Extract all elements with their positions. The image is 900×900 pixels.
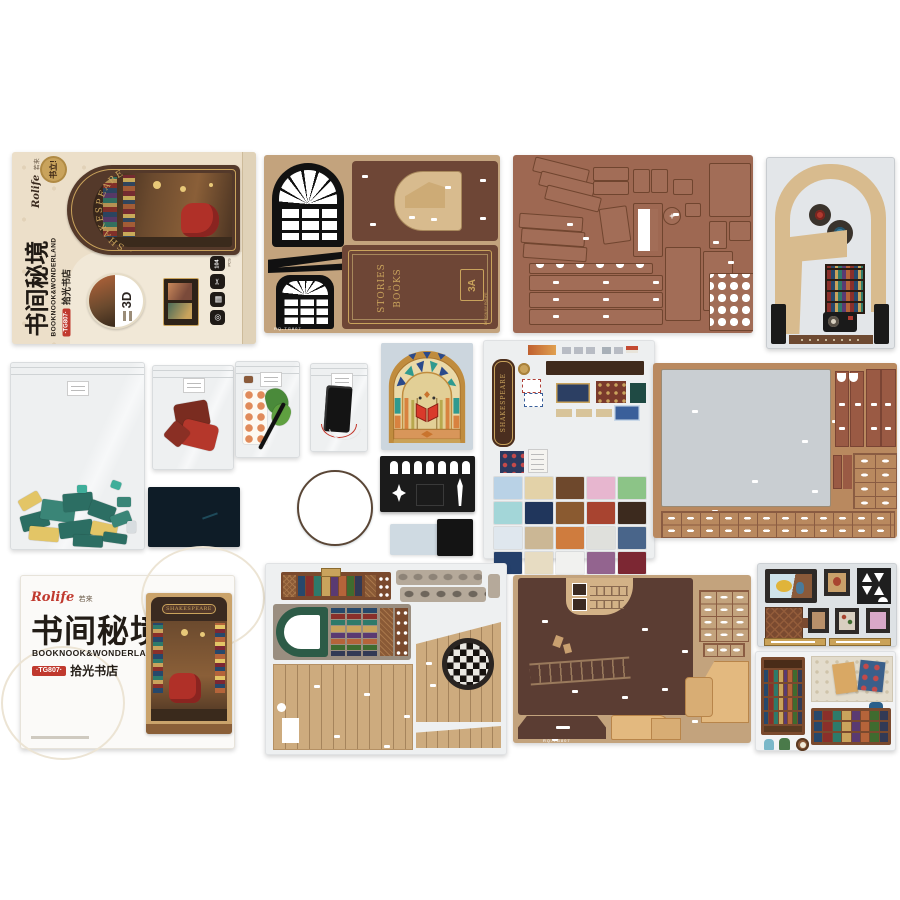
wallpaper-panel-part: [811, 656, 893, 702]
ladder-etch-large: [529, 657, 630, 686]
swatch: [769, 698, 773, 710]
swatch: [347, 645, 361, 650]
assembly-glyph: ▦: [213, 296, 222, 304]
swatch: [363, 626, 377, 631]
envelope-sticker: [522, 379, 541, 393]
lightblue-panel: [390, 524, 438, 555]
box-brand: Rolife 若来: [26, 166, 38, 208]
book-cover-panel: STORIES in BOOKS 3A DESIGN BY ROLIFE: [342, 245, 498, 329]
swatch: [322, 576, 329, 596]
swatch: [339, 576, 346, 596]
arch-cutout-tan: [566, 578, 633, 615]
swatch: [833, 722, 841, 731]
dotted-tile: [395, 608, 408, 656]
assembly-icon: ▦: [210, 292, 225, 307]
gray-wall-part: [661, 369, 831, 507]
sheet-arch-gray: [766, 157, 895, 349]
envelope-sticker: [524, 393, 543, 407]
swatch: [798, 670, 802, 682]
bag-label: [260, 372, 282, 387]
black-cut-sheet: [380, 456, 475, 512]
floor-strip-part: [416, 726, 501, 748]
swatch: [774, 684, 778, 696]
swatch: [556, 477, 584, 499]
swatch: [769, 684, 773, 696]
swatch: [784, 684, 788, 696]
cover-logo-box: 3A: [460, 269, 484, 301]
sheet-gray-panel: [653, 363, 897, 538]
swatch: [347, 608, 361, 613]
black-corner-part: [771, 304, 786, 344]
swatch: [618, 477, 646, 499]
swatch: [331, 576, 338, 596]
bag-accessories: [235, 361, 300, 458]
dark-base-part: [518, 716, 606, 739]
rect-window-frame: [276, 275, 334, 329]
swatch: [331, 614, 345, 619]
swatch: [779, 712, 783, 724]
stone-path-part: [396, 570, 482, 585]
swatch: [525, 552, 553, 574]
cut-part: [599, 205, 632, 245]
small-gray-stickers: [562, 347, 571, 354]
swatch: [779, 684, 783, 696]
vase-blob: [796, 582, 804, 594]
slot-marks: [542, 620, 548, 623]
bag-red-parts: [152, 365, 234, 470]
swatch: [870, 733, 878, 742]
swatch: [861, 711, 869, 720]
sheet-code: RQ-TG807: [543, 738, 571, 743]
shelf-base: [764, 726, 802, 732]
swatch: [347, 633, 361, 638]
swatch: [784, 712, 788, 724]
portrait-sticker: [824, 569, 850, 596]
kit-piece: [117, 497, 131, 507]
pink-frame: [866, 608, 890, 633]
camera-dot: [848, 316, 853, 320]
tall-bookshelf-part: [761, 657, 805, 735]
cut-part: [529, 309, 663, 325]
portrait-canvas: [828, 573, 846, 592]
cut-square: [572, 583, 587, 596]
booklet-brand-cn: 若来: [79, 596, 93, 603]
photo-interior: [151, 621, 227, 721]
cover-title: STORIES in BOOKS: [377, 256, 407, 320]
swatch: [363, 620, 377, 625]
booklet-product-photo: SHAKESPEARE: [146, 593, 232, 734]
long-brown-sticker: [546, 361, 644, 375]
metal-wire-ring: [297, 470, 373, 546]
ladder-etch: [590, 586, 628, 596]
cut-part: [729, 221, 751, 241]
swatch: [525, 502, 553, 524]
cover-logo: 3A: [466, 279, 477, 292]
strip-slot: [836, 641, 880, 643]
dotted-tile: [378, 575, 389, 597]
box-side-strip: [242, 152, 256, 344]
swatch: [880, 722, 888, 731]
mini-figure-sticker: [764, 739, 774, 750]
swatch: [298, 576, 305, 596]
slot-marks: [314, 685, 320, 688]
lattice-door-part: [765, 607, 803, 639]
photo-floor: [151, 709, 227, 721]
base-strip-part: [789, 335, 873, 344]
swatch: [331, 645, 345, 650]
roof-panel: [352, 161, 498, 241]
swatch: [814, 733, 822, 742]
shakespeare-sign-text: SHAKESPEARE: [500, 373, 507, 432]
tan-chip: [552, 635, 563, 648]
arch-title-curve: · SHAKESPEARE ·: [67, 165, 167, 255]
swatch: [870, 711, 878, 720]
floor-cutout: [282, 718, 299, 743]
square-row-part: [703, 643, 745, 657]
swatch: [355, 576, 362, 596]
swatch: [306, 576, 313, 596]
lattice-tile: [365, 575, 376, 597]
tan-chip: [563, 643, 572, 654]
cover-title-top: STORIES: [377, 256, 387, 320]
swatch: [618, 527, 646, 549]
box-badge-text: 书立!: [48, 160, 59, 179]
swatch: [331, 639, 345, 644]
cover-title-bottom: BOOKS: [393, 256, 403, 320]
triangle-cutout: [862, 573, 872, 582]
sheet-windows-cover: STORIES in BOOKS 3A DESIGN BY ROLIFE RQ-…: [264, 155, 500, 333]
book-row: [814, 722, 888, 731]
swatch: [764, 712, 768, 724]
acrylic-panel: [148, 487, 240, 547]
box-subtitle: 拾光书店: [60, 269, 73, 305]
booklet-title-en: BOOKNOOK&WONDERLAND: [32, 648, 159, 658]
photo-card-img: [168, 303, 192, 319]
arch-inlay-part: [394, 171, 462, 231]
floor-hole: [277, 703, 286, 712]
swatch: [618, 502, 646, 524]
bag-label: [67, 381, 89, 396]
swatch: [347, 620, 361, 625]
inlay-etch: [405, 182, 445, 208]
swatch: [556, 502, 584, 524]
sheet-small-parts: +: [513, 155, 753, 333]
photo-arch-top: SHAKESPEARE: [151, 597, 227, 621]
slot-marks: [839, 403, 845, 406]
cut-part: [633, 169, 650, 193]
poster-blue: [858, 660, 886, 692]
swatch: [347, 639, 361, 644]
slot-marks: [556, 726, 570, 729]
lattice-tile: [380, 608, 393, 656]
retail-box: Rolife 若来 书立! · SHAKESPEARE ·: [12, 152, 256, 344]
slot-marks: [692, 410, 698, 413]
mini-armchair: [181, 203, 219, 237]
pieces-count-badge: 104: [210, 256, 225, 271]
shelf-top: [764, 660, 802, 668]
swatch: [788, 712, 792, 724]
booklet-subtitle: 拾光书店: [70, 662, 118, 679]
swatch: [880, 733, 888, 742]
cut-part: [709, 163, 751, 217]
medallion-sticker: [518, 363, 530, 375]
swatch: [798, 698, 802, 710]
swatch: [788, 670, 792, 682]
swatch: [852, 733, 860, 742]
photo-shelf: [215, 623, 225, 693]
slot-marks: [409, 216, 415, 219]
tiny-flag-sticker: [626, 346, 638, 353]
plank-part: [866, 369, 881, 447]
checker-rug: [442, 638, 494, 690]
shakespeare-sign-sticker: SHAKESPEARE: [492, 359, 515, 447]
booklet-brand: Rolife 若来: [31, 588, 93, 606]
black-panel: [437, 519, 473, 556]
floral-sticker: [500, 451, 524, 473]
camera-part: [823, 312, 857, 332]
bag-battery: [310, 363, 368, 452]
box-title-block: 书间秘境 BOOKNOOK&WONDERLAND ·TG807· 拾光书店: [27, 232, 71, 337]
swatch: [774, 712, 778, 724]
sunflower-painting: [765, 569, 817, 603]
top-strip-sticker: [528, 345, 556, 355]
swatch: [861, 733, 869, 742]
sheet-bookshelf-floor: [265, 563, 507, 755]
book-cover-sticker: [614, 405, 640, 421]
triangle-cutout: [874, 573, 884, 582]
booklet-footnote: [31, 736, 89, 739]
dark-wall-part: [518, 578, 693, 715]
swatch: [331, 620, 345, 625]
swatch: [769, 670, 773, 682]
kit-piece: [73, 534, 104, 548]
swatch: [363, 651, 377, 656]
kit-clip: [127, 521, 136, 533]
slot-marks: [426, 662, 432, 665]
swatch: [331, 651, 345, 656]
swatch: [870, 722, 878, 731]
angled-floor-part: [416, 622, 501, 722]
sheet-code: RQ-TG807: [274, 326, 302, 331]
arched-window-frame: [272, 163, 344, 247]
cover-logo-sub: DESIGN BY ROLIFE: [484, 285, 488, 325]
cut-part: [673, 179, 693, 195]
window-rail-piece: [268, 251, 350, 273]
cut-part: [593, 167, 629, 181]
swatch: [842, 733, 850, 742]
swatch: [363, 639, 377, 644]
cut-part: [651, 169, 668, 193]
slot-marks: [553, 281, 559, 284]
photo-card-img: [168, 283, 192, 300]
swatch: [556, 527, 584, 549]
3d-sticker-photo: [89, 275, 115, 327]
poster-flowers: [832, 662, 858, 695]
arch-cutouts: [390, 461, 398, 474]
swatch: [788, 698, 792, 710]
box-3d-sticker: 3D: [87, 273, 145, 329]
3d-sticker-lines: [123, 311, 126, 321]
swatch: [842, 722, 850, 731]
cut-part: [529, 275, 663, 291]
gold-strip-part: [829, 638, 891, 646]
swatch: [363, 633, 377, 638]
led-icon: ◎: [210, 310, 225, 325]
shelf-sign: [321, 568, 341, 577]
book-row: [764, 670, 802, 682]
sunflower-blob: [776, 580, 792, 592]
book-row: [764, 684, 802, 696]
drawer-grid-part: [853, 453, 897, 509]
finial-cutout: [456, 478, 464, 506]
book-column: [347, 608, 361, 656]
swatch: [525, 527, 553, 549]
swatch: [779, 670, 783, 682]
box-brand-name: Rolife: [31, 175, 42, 208]
clock-face: [800, 742, 806, 748]
swatch: [823, 722, 831, 731]
swatch: [793, 712, 797, 724]
swatch: [363, 614, 377, 619]
label-stickers: [556, 409, 572, 417]
floor-plank-part: [273, 664, 413, 750]
book-row: [298, 576, 362, 596]
swatch: [793, 684, 797, 696]
kit-piece: [102, 531, 127, 544]
frame-canvas: [839, 612, 855, 630]
small-frame: [808, 608, 829, 633]
cut-part: [529, 263, 653, 274]
kit-piece: [17, 490, 42, 511]
bag-label: [183, 378, 205, 393]
swatch: [833, 711, 841, 720]
window-grid-panes: [279, 206, 337, 240]
box-feature-icons: 104 PCS ✂ ▦ ◎: [210, 256, 228, 326]
product-flatlay-photo: Rolife 若来 书立! · SHAKESPEARE ·: [0, 0, 900, 900]
plank-part: [850, 371, 864, 447]
swatch: [618, 552, 646, 574]
cut-window-grid: [709, 273, 753, 331]
plank-part: [835, 371, 849, 447]
cut-part: [529, 292, 663, 308]
window-fan-panes: [282, 281, 328, 295]
swatch: [525, 477, 553, 499]
no-cut-icon: ✂: [210, 274, 225, 289]
window-fan-panes: [279, 170, 337, 204]
cut-part: [685, 203, 701, 217]
frame-canvas: [870, 612, 886, 629]
swatch: [587, 527, 615, 549]
photo-armchair: [169, 673, 201, 703]
disc-center: [815, 210, 825, 220]
arch-title-text: · SHAKESPEARE ·: [95, 165, 134, 255]
swatch: [880, 711, 888, 720]
swatch: [347, 626, 361, 631]
printed-bookshelf-part: [825, 264, 865, 314]
svg-text:· SHAKESPEARE ·: · SHAKESPEARE ·: [95, 165, 134, 255]
booklet-sku-badge: ·TG807·: [32, 666, 66, 676]
box-brand-cn: 若来: [35, 158, 41, 170]
swatch: [494, 527, 522, 549]
black-pattern-part: [857, 568, 891, 604]
frame-canvas: [812, 612, 825, 629]
book-cover-sticker: [630, 383, 646, 403]
swatch: [314, 576, 321, 596]
swatch: [347, 614, 361, 619]
wide-bookshelf-part: [811, 708, 891, 745]
cut-part: [665, 247, 701, 321]
arch-bookshelf-part: [273, 604, 411, 660]
painting-canvas: [770, 574, 812, 598]
book-row: [814, 733, 888, 742]
swatch: [852, 722, 860, 731]
photo-sign-text: SHAKESPEARE: [162, 604, 216, 614]
swatch: [861, 722, 869, 731]
photo-shelf: [153, 623, 163, 693]
mini-clock-sticker: [796, 738, 809, 751]
3d-sticker-text: 3D: [119, 289, 133, 311]
booklet-sku-row: ·TG807· 拾光书店: [32, 662, 118, 679]
swatch: [779, 698, 783, 710]
box-badge: 书立!: [42, 158, 65, 181]
small-bead: [244, 376, 253, 383]
swatch: [814, 711, 822, 720]
led-glyph: ◎: [213, 314, 222, 321]
cut-part: [593, 181, 629, 195]
instruction-booklet: Rolife 若来 书间秘境 BOOKNOOK&WONDERLAND ·TG80…: [20, 575, 235, 749]
kit-clip: [110, 480, 122, 491]
book-row: [764, 712, 802, 724]
book-column: [331, 608, 345, 656]
triangle-cutout: [874, 586, 884, 595]
kit-piece: [28, 526, 59, 543]
book-cover-sticker: [556, 383, 590, 403]
swatch: [331, 633, 345, 638]
kit-clip: [77, 485, 87, 493]
swatch: [363, 645, 377, 650]
photo-lamp: [181, 629, 188, 636]
ornament-cutout: [392, 484, 406, 502]
arch-cut-white: [837, 373, 846, 382]
mini-figure-sticker: [779, 738, 790, 750]
etched-rect: [416, 484, 444, 506]
drawer-strip-part: [661, 511, 895, 538]
swatch: [814, 722, 822, 731]
pieces-count: 104: [215, 259, 221, 268]
swatch: [764, 698, 768, 710]
stone-path-part: [400, 587, 486, 602]
gold-strip-part: [764, 638, 826, 646]
swatch: [347, 576, 354, 596]
swatch: [823, 711, 831, 720]
swatch: [784, 670, 788, 682]
ladder-etch: [590, 600, 624, 609]
stained-glass-backing: [381, 343, 473, 450]
book-row: [764, 698, 802, 710]
swatch: [347, 651, 361, 656]
slot-marks: [362, 175, 368, 178]
box-title-en: BOOKNOOK&WONDERLAND: [51, 232, 58, 337]
window-grid-panes: [282, 297, 328, 324]
triangle-cutout: [862, 586, 872, 595]
swatch: [798, 712, 802, 724]
shelf-top-part: [281, 572, 391, 600]
swatch: [823, 733, 831, 742]
green-arch-band: [276, 607, 328, 657]
box-photo-card: [163, 278, 199, 326]
swatch: [587, 477, 615, 499]
book-row: [814, 711, 888, 720]
